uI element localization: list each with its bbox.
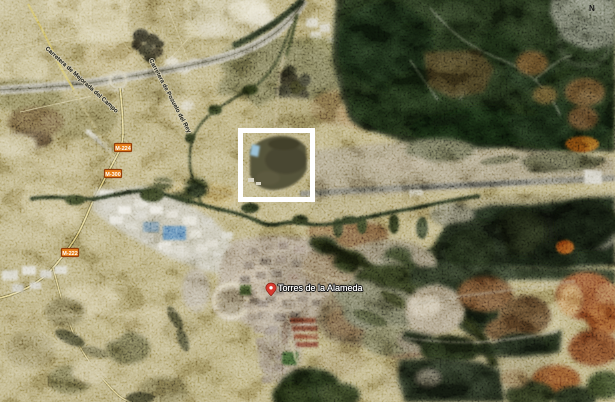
- svg-text:M-300: M-300: [105, 172, 121, 178]
- svg-text:N: N: [589, 4, 595, 13]
- svg-text:M-222: M-222: [62, 251, 78, 257]
- svg-text:Torres de la Alameda: Torres de la Alameda: [278, 283, 363, 293]
- svg-text:M-224: M-224: [115, 146, 132, 152]
